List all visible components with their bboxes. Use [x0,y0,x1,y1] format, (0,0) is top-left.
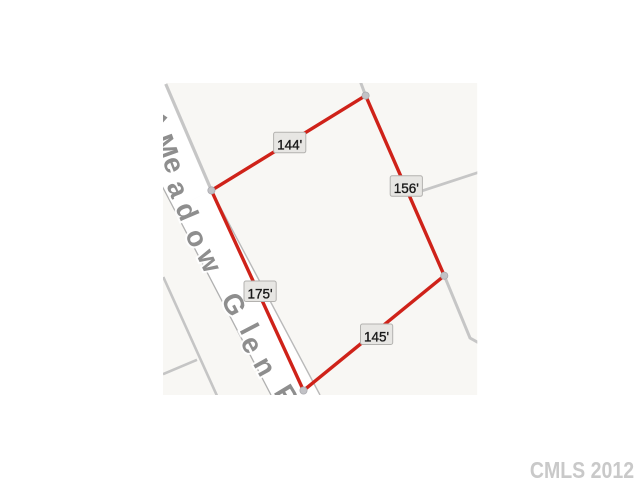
svg-text:175': 175' [248,286,273,301]
svg-text:156': 156' [394,181,419,196]
svg-text:CMLS 2012: CMLS 2012 [530,458,634,480]
svg-text:145': 145' [364,329,389,344]
svg-text:144': 144' [277,138,302,153]
